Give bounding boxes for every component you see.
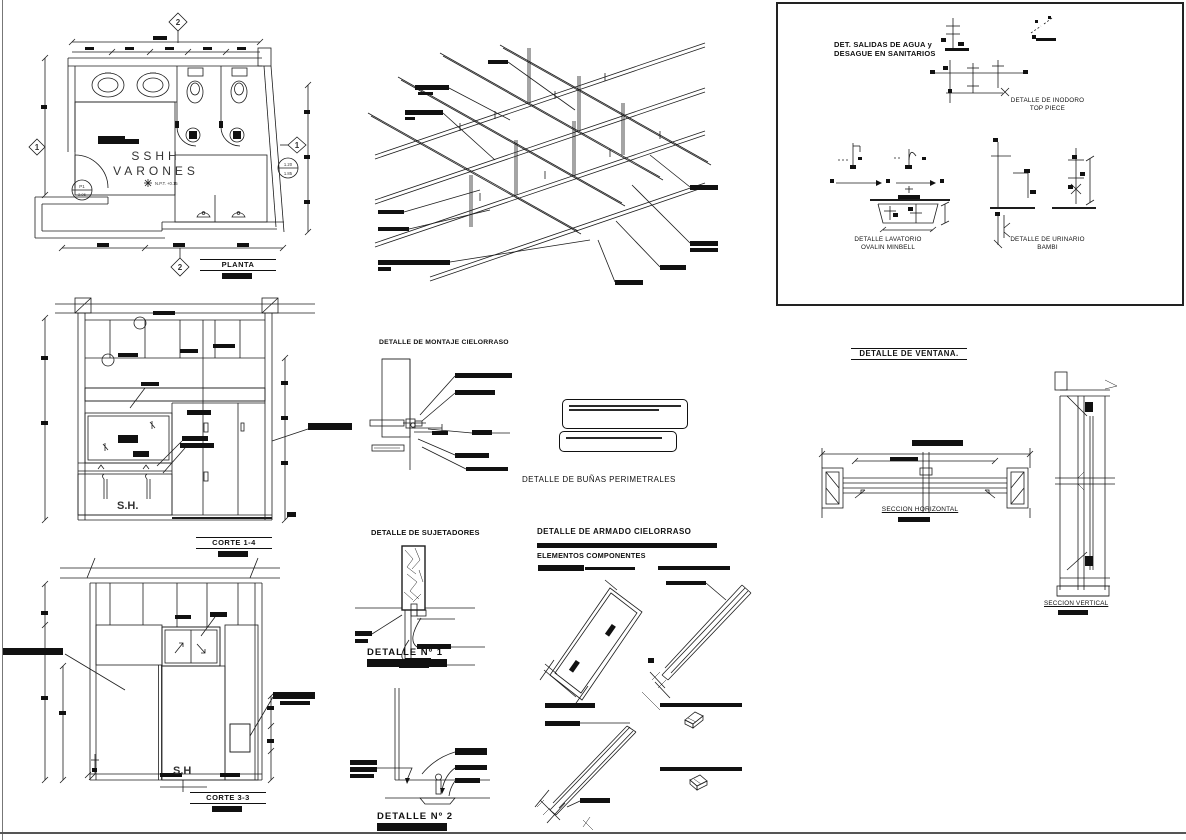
- cad-sheet: 2 2 1 1: [0, 0, 1186, 840]
- urinario-symbols: [990, 138, 1096, 248]
- detalle1-caption: DETALLE Nº 1: [367, 647, 462, 659]
- montaje-fixture: [370, 419, 442, 451]
- main-runners: [375, 43, 705, 281]
- svg-text:2: 2: [176, 18, 181, 27]
- plan-door-arc: P1 2.05: [72, 155, 108, 200]
- counter-block: [98, 136, 125, 144]
- ventana-v-bottom: [1057, 552, 1110, 596]
- axis-marker-left: 1: [29, 139, 45, 155]
- room-label: SSHH VARONES: [113, 149, 199, 178]
- lavatorio-caption: DETALLE LAVATORIO OVALIN MINBELL: [838, 236, 938, 252]
- seccion-horizontal-caption: SECCION HORIZONTAL: [870, 506, 970, 514]
- armado-leaders: [658, 566, 730, 600]
- elementos-subtitle: ELEMENTOS COMPONENTES: [537, 551, 677, 560]
- sujetadores-title: DETALLE DE SUJETADORES: [371, 528, 506, 537]
- armado-title: DETALLE DE ARMADO CIELORRASO: [537, 527, 717, 537]
- svg-text:2: 2: [178, 263, 183, 272]
- plan-caption: PLANTA: [200, 259, 276, 271]
- bunas-caption: DETALLE DE BUÑAS PERIMETRALES: [522, 475, 692, 485]
- montaje-leaders: [418, 373, 512, 471]
- plan-walls: [35, 48, 284, 238]
- sujetadores-fixture: [355, 604, 475, 619]
- montaje-drawing: [370, 335, 580, 480]
- ventana-vertical-section: [1045, 360, 1135, 610]
- lavatory-basins: [75, 73, 177, 102]
- ceiling-grid-isometric: [360, 15, 720, 290]
- plan-scale-bar: [222, 273, 252, 279]
- svg-text:1.20: 1.20: [284, 162, 293, 167]
- detalle2-anchor: [420, 774, 455, 804]
- detalle1-scale-bar: [367, 659, 447, 667]
- floor-drains: [197, 195, 245, 222]
- armado-profile: [642, 585, 751, 710]
- svg-text:VARONES: VARONES: [113, 164, 199, 178]
- svg-text:2.05: 2.05: [78, 192, 87, 197]
- seccion-vertical-bar: [1058, 610, 1088, 615]
- urinario-caption: DETALLE DE URINARIO BAMBI: [1000, 236, 1095, 252]
- component-elements: [535, 695, 785, 835]
- svg-text:N.P.T. +0.15: N.P.T. +0.15: [155, 181, 178, 186]
- armado-drawing: [530, 560, 790, 710]
- detalle2-leaders: [350, 748, 487, 796]
- corte33-left-label-bar: [3, 648, 63, 655]
- lavatorio-symbols: [830, 143, 950, 232]
- wc-stalls: [175, 66, 247, 146]
- floor-plan-drawing: 2 2 1 1: [25, 5, 340, 300]
- detalle2-drawing: [350, 680, 565, 830]
- corte33-dims: [41, 581, 315, 783]
- corte33-structure: [60, 558, 280, 780]
- corte33-caption: CORTE 3-3: [190, 792, 266, 804]
- note-box-1: [562, 399, 688, 429]
- counter-block-2: [125, 139, 139, 144]
- corte33-scale-bar: [212, 806, 242, 812]
- svg-text:1.85: 1.85: [284, 171, 293, 176]
- component-clips: [660, 703, 742, 790]
- svg-text:P1: P1: [79, 184, 85, 189]
- corte14-lower-left: S.H.: [78, 463, 172, 515]
- corte14-caption: CORTE 1-4: [196, 537, 272, 549]
- corte-1-4-drawing: S.H.: [25, 296, 355, 561]
- corte14-structure: [55, 298, 315, 520]
- corte33-tiles-window: [96, 612, 258, 780]
- axis-marker-right: 1: [280, 137, 306, 153]
- corte33-room-label: S.H: [173, 765, 191, 777]
- corte14-door-side: [157, 320, 265, 515]
- inodoro-caption: DETALLE DE INODORO TOP PIECE: [995, 97, 1100, 113]
- iso-leader-labels: [378, 60, 718, 285]
- npt-level-mark: N.P.T. +0.15: [144, 179, 178, 187]
- corte14-room-label: S.H.: [117, 500, 138, 512]
- sheet-border-left: [2, 0, 3, 840]
- ventana-h-dims: [819, 440, 1033, 468]
- svg-text:1: 1: [295, 141, 300, 150]
- ventana-title: DETALLE DE VENTANA.: [851, 348, 967, 360]
- plan-dimensions-top: [69, 36, 263, 55]
- montaje-wall: [382, 359, 410, 470]
- svg-text:SSHH: SSHH: [131, 149, 180, 163]
- axis-marker-top: 2: [169, 13, 187, 43]
- note-box-2: [559, 431, 677, 452]
- seccion-vertical-caption: SECCION VERTICAL: [1044, 600, 1134, 608]
- svg-text:1: 1: [35, 143, 40, 152]
- sanitary-symbols: [798, 8, 1180, 263]
- detalle2-caption: DETALLE Nº 2: [377, 811, 472, 823]
- level-circle: 1.20 1.85: [278, 158, 298, 178]
- armado-title-bar: [537, 543, 717, 548]
- inodoro-symbols: [930, 16, 1056, 103]
- component-z-profile: [535, 703, 636, 830]
- seccion-horizontal-bar: [898, 517, 930, 522]
- detalle2-scale-bar: [377, 823, 447, 831]
- corte14-mirror: [85, 413, 172, 463]
- axis-marker-bottom: 2: [171, 248, 189, 276]
- hanger-wires: [470, 48, 624, 227]
- corte-3-3-drawing: S.H: [25, 556, 355, 828]
